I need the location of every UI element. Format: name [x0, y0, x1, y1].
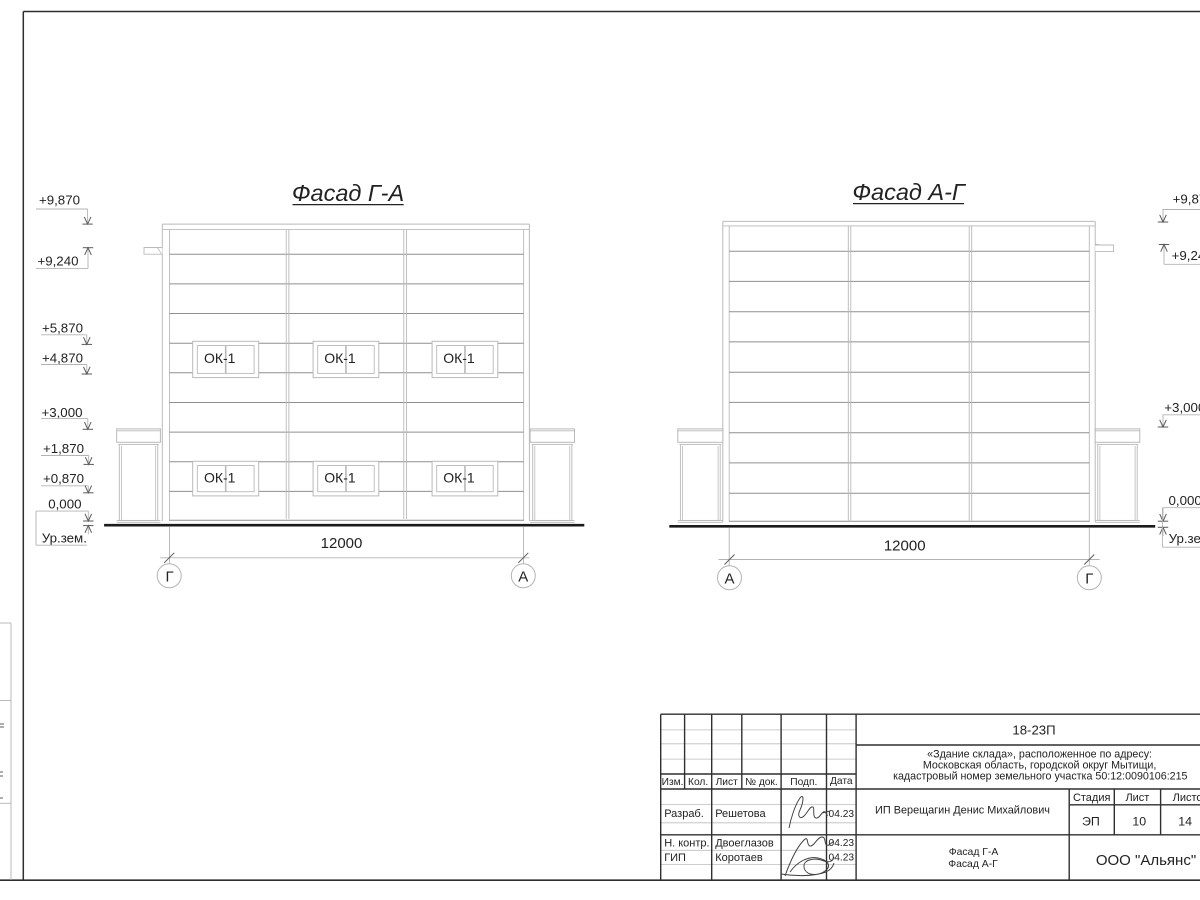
svg-text:ОК-1: ОК-1	[204, 350, 236, 366]
svg-text:ОК-1: ОК-1	[443, 470, 475, 486]
svg-text:+9,240: +9,240	[1172, 248, 1200, 263]
svg-text:ЭП: ЭП	[1082, 815, 1100, 829]
svg-text:0,000: 0,000	[1169, 493, 1200, 508]
svg-text:+1,870: +1,870	[43, 441, 84, 456]
svg-text:+4,870: +4,870	[42, 351, 83, 366]
svg-text:14: 14	[1178, 815, 1192, 829]
svg-text:10: 10	[1132, 815, 1146, 829]
svg-text:ОК-1: ОК-1	[204, 470, 236, 486]
svg-text:Фасад А-Г: Фасад А-Г	[852, 179, 967, 205]
svg-text:Стадия: Стадия	[1073, 792, 1111, 804]
svg-text:Г: Г	[165, 568, 173, 585]
svg-text:Листов: Листов	[1173, 792, 1200, 804]
svg-text:Решетова: Решетова	[715, 808, 766, 820]
svg-text:Ур.зем.: Ур.зем.	[1169, 531, 1200, 546]
svg-text:Дата: Дата	[830, 776, 853, 787]
svg-text:+3,000: +3,000	[41, 405, 82, 420]
svg-text:Разраб.: Разраб.	[664, 808, 704, 820]
svg-text:ИП Верещагин Денис Михайлович: ИП Верещагин Денис Михайлович	[875, 805, 1050, 817]
svg-text:А: А	[518, 568, 528, 585]
svg-text:12000: 12000	[321, 535, 363, 552]
svg-text:Г: Г	[1085, 570, 1093, 587]
svg-text:+5,870: +5,870	[42, 321, 83, 336]
svg-text:+3,000: +3,000	[1164, 400, 1200, 415]
svg-text:12000: 12000	[884, 538, 926, 555]
svg-text:Коротаев: Коротаев	[715, 852, 763, 864]
svg-text:А: А	[724, 570, 734, 587]
svg-text:Ур.зем.: Ур.зем.	[42, 531, 87, 546]
svg-text:04.23: 04.23	[829, 809, 855, 820]
svg-text:04.23: 04.23	[829, 838, 855, 849]
svg-text:04.23: 04.23	[829, 853, 855, 864]
svg-text:Подп.: Подп.	[790, 777, 817, 788]
svg-text:Лист: Лист	[1125, 792, 1149, 804]
svg-text:Двоеглазов: Двоеглазов	[715, 837, 774, 849]
svg-text:Н. контр.: Н. контр.	[664, 837, 709, 849]
svg-text:ООО "Альянс": ООО "Альянс"	[1096, 852, 1196, 869]
svg-text:Изм.: Изм.	[662, 777, 684, 788]
svg-text:+9,240: +9,240	[37, 254, 78, 269]
svg-text:+9,870: +9,870	[1173, 191, 1200, 206]
svg-text:ГИП: ГИП	[664, 852, 686, 864]
svg-text:Фасад Г-А: Фасад Г-А	[949, 847, 999, 858]
svg-text:18-23П: 18-23П	[1012, 722, 1055, 737]
svg-text:+0,870: +0,870	[43, 471, 84, 486]
svg-text:0,000: 0,000	[48, 497, 81, 512]
svg-text:+9,870: +9,870	[39, 192, 80, 207]
svg-text:ОК-1: ОК-1	[324, 350, 356, 366]
svg-text:кадастровый номер земельного у: кадастровый номер земельного участка 50:…	[893, 770, 1187, 782]
svg-text:Кол.: Кол.	[688, 777, 708, 788]
svg-text:Фасад Г-А: Фасад Г-А	[292, 180, 404, 206]
svg-text:Лист: Лист	[716, 777, 738, 788]
svg-text:ОК-1: ОК-1	[324, 470, 356, 486]
svg-text:№ док.: № док.	[745, 777, 778, 788]
svg-text:ОК-1: ОК-1	[443, 350, 475, 366]
svg-text:Фасад А-Г: Фасад А-Г	[948, 859, 998, 870]
